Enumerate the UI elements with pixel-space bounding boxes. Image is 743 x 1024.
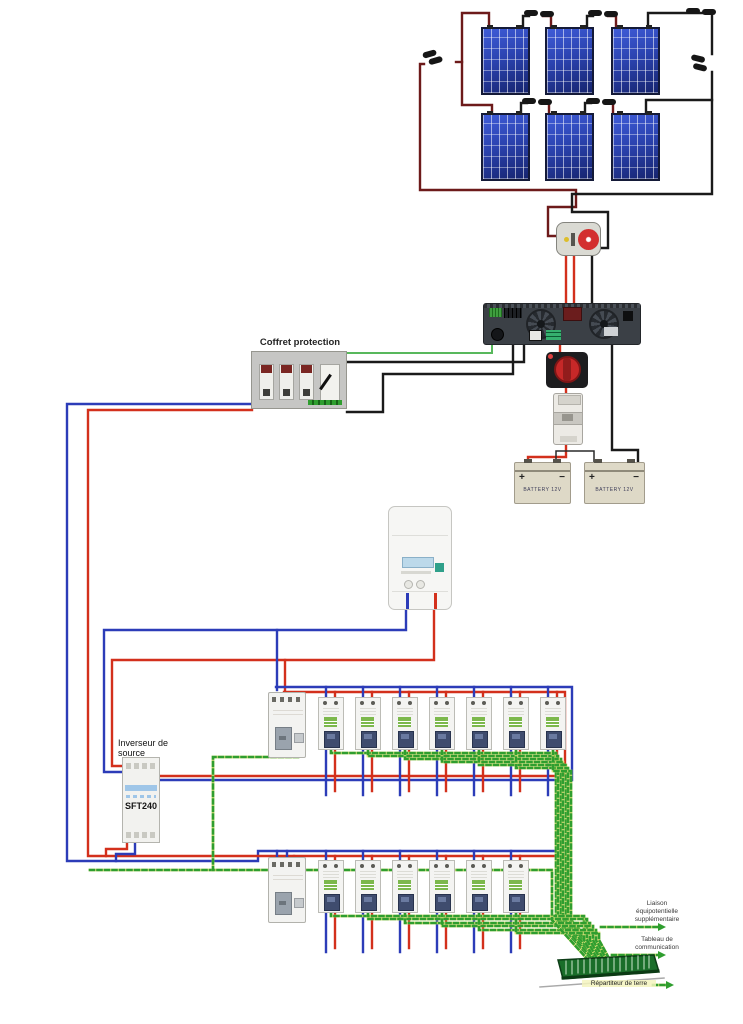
solar-panel (611, 27, 660, 95)
battery-terminal (594, 459, 602, 463)
breaker-brand-label (398, 880, 411, 890)
terminal-screws (126, 763, 158, 769)
dc-disconnect-switch (556, 222, 601, 256)
circuit-breaker (429, 860, 455, 913)
coffret-protection-label: Coffret protection (248, 337, 352, 348)
breaker-row-1 (318, 697, 566, 750)
fuse-cap (558, 395, 581, 405)
solar-panel (481, 27, 530, 95)
terminal-block (504, 308, 522, 318)
breaker-toggle (361, 894, 377, 911)
dc-fuse-holder (553, 393, 583, 445)
circuit-breaker (318, 860, 344, 913)
solar-panel (481, 113, 530, 181)
linky-energy-meter (388, 506, 452, 610)
circuit-breaker (355, 860, 381, 913)
fuse-window (562, 414, 573, 421)
source-transfer-switch-sft240: SFT240 (122, 757, 160, 843)
breaker-brand-label (509, 717, 522, 727)
blue-dashes (126, 795, 156, 798)
circuit-breaker (355, 697, 381, 750)
meter-display (402, 557, 434, 568)
breaker-brand-label (509, 880, 522, 890)
solar-panel (611, 113, 660, 181)
ethernet-port (529, 330, 542, 341)
battery-terminal (553, 459, 561, 463)
breaker-brand-label (472, 717, 485, 727)
breaker-brand-label (324, 717, 337, 727)
inverseur-de-source-label: Inverseur de source (118, 738, 194, 758)
status-display (546, 330, 561, 340)
panel-terminal (516, 111, 522, 115)
circuit-breaker (503, 860, 529, 913)
breaker-row-2 (318, 860, 529, 913)
plus-marking: + (519, 472, 525, 483)
breaker-brand-label (324, 880, 337, 890)
breaker-toggle (324, 731, 340, 748)
breaker-brand-label (361, 880, 374, 890)
rcd-toggle (275, 892, 292, 915)
din-breaker-module (259, 364, 274, 400)
breaker-toggle (435, 731, 451, 748)
wiring-diagram: + − BATTERY 12V + − BATTERY 12V Coffret … (0, 0, 743, 1024)
terminal-screws (126, 832, 158, 838)
rcd-toggle (275, 727, 292, 750)
liaison-equipotentielle-label: Liaison équipotentielle supplémentaire (614, 900, 700, 924)
battery-terminal (524, 459, 532, 463)
battery-label: BATTERY 12V (515, 487, 570, 493)
isolator-module (320, 364, 340, 402)
minus-marking: − (633, 472, 639, 483)
isolator-lever (319, 374, 332, 390)
tableau-communication-label: Tableau de communication (614, 936, 700, 952)
breaker-toggle (472, 894, 488, 911)
panel-terminal (580, 25, 586, 29)
rcd-test-button (294, 898, 304, 908)
repartiteur-de-terre-label: Répartiteur de terre (582, 980, 656, 987)
meter-button (416, 580, 425, 589)
circuit-breaker (503, 697, 529, 750)
blue-band (125, 785, 157, 791)
circuit-breaker (392, 860, 418, 913)
indicator-dot (548, 354, 553, 359)
circuit-breaker (540, 697, 566, 750)
circuit-breaker (429, 697, 455, 750)
round-knob (491, 328, 504, 341)
solar-panel (545, 113, 594, 181)
breaker-toggle (398, 894, 414, 911)
repartiteur-arrowhead (666, 981, 674, 989)
panel-terminal (487, 111, 493, 115)
coffret-protection-box (251, 351, 347, 409)
liaison-arrowhead (658, 923, 666, 931)
breaker-toggle (546, 731, 562, 748)
neutral-stub (406, 593, 409, 609)
breaker-toggle (361, 731, 377, 748)
din-breaker-module (279, 364, 294, 400)
battery-terminal (627, 459, 635, 463)
circuit-breaker (318, 697, 344, 750)
dc-input-block (563, 307, 582, 321)
breaker-toggle (398, 731, 414, 748)
tableau-arrowhead (658, 951, 666, 959)
hybrid-inverter (483, 303, 641, 345)
dial-handle (563, 358, 571, 381)
minus-marking: − (559, 472, 565, 483)
battery-disconnect-switch (546, 352, 588, 388)
din-breaker-module (299, 364, 314, 400)
meter-seam (392, 591, 448, 592)
indicator-dot (564, 237, 569, 242)
earth-bar (308, 400, 342, 405)
solar-panel (545, 27, 594, 95)
teal-chip (435, 563, 444, 572)
solar-panel-row-1 (481, 27, 666, 97)
breaker-brand-label (472, 880, 485, 890)
rating-label (604, 327, 618, 336)
rcd-differential-switch-row2 (268, 857, 306, 923)
circuit-breaker (392, 697, 418, 750)
breaker-toggle (435, 894, 451, 911)
panel-terminal (617, 25, 623, 29)
breaker-toggle (509, 731, 525, 748)
meter-seam (392, 535, 448, 536)
meter-button (404, 580, 413, 589)
panel-terminal (516, 25, 522, 29)
meter-text-area (401, 571, 431, 574)
circuit-breaker (466, 860, 492, 913)
green-terminal-block (489, 308, 502, 317)
panel-terminal (551, 25, 557, 29)
phase-stub (434, 593, 437, 609)
rcd-differential-switch-row1 (268, 692, 306, 758)
battery-label: BATTERY 12V (585, 487, 644, 493)
panel-terminal (580, 111, 586, 115)
fuse-foot (560, 436, 577, 442)
battery-right: + − BATTERY 12V (584, 462, 645, 504)
panel-terminal (617, 111, 623, 115)
panel-terminal (646, 111, 652, 115)
solar-panel-row-2 (481, 113, 666, 183)
breaker-brand-label (546, 717, 559, 727)
rcd-test-button (294, 733, 304, 743)
breaker-brand-label (398, 717, 411, 727)
breaker-brand-label (435, 717, 448, 727)
battery-left: + − BATTERY 12V (514, 462, 571, 504)
panel-terminal (646, 25, 652, 29)
switch-marking (571, 233, 575, 246)
circuit-breaker (466, 697, 492, 750)
breaker-brand-label (435, 880, 448, 890)
red-dial (578, 229, 599, 250)
breaker-brand-label (361, 717, 374, 727)
plus-marking: + (589, 472, 595, 483)
panel-terminal (487, 25, 493, 29)
breaker-toggle (324, 894, 340, 911)
panel-terminal (551, 111, 557, 115)
dc-feed-wires (566, 256, 574, 304)
breaker-toggle (472, 731, 488, 748)
sft240-model-label: SFT240 (123, 801, 159, 811)
output-connector (623, 311, 633, 321)
breaker-toggle (509, 894, 525, 911)
